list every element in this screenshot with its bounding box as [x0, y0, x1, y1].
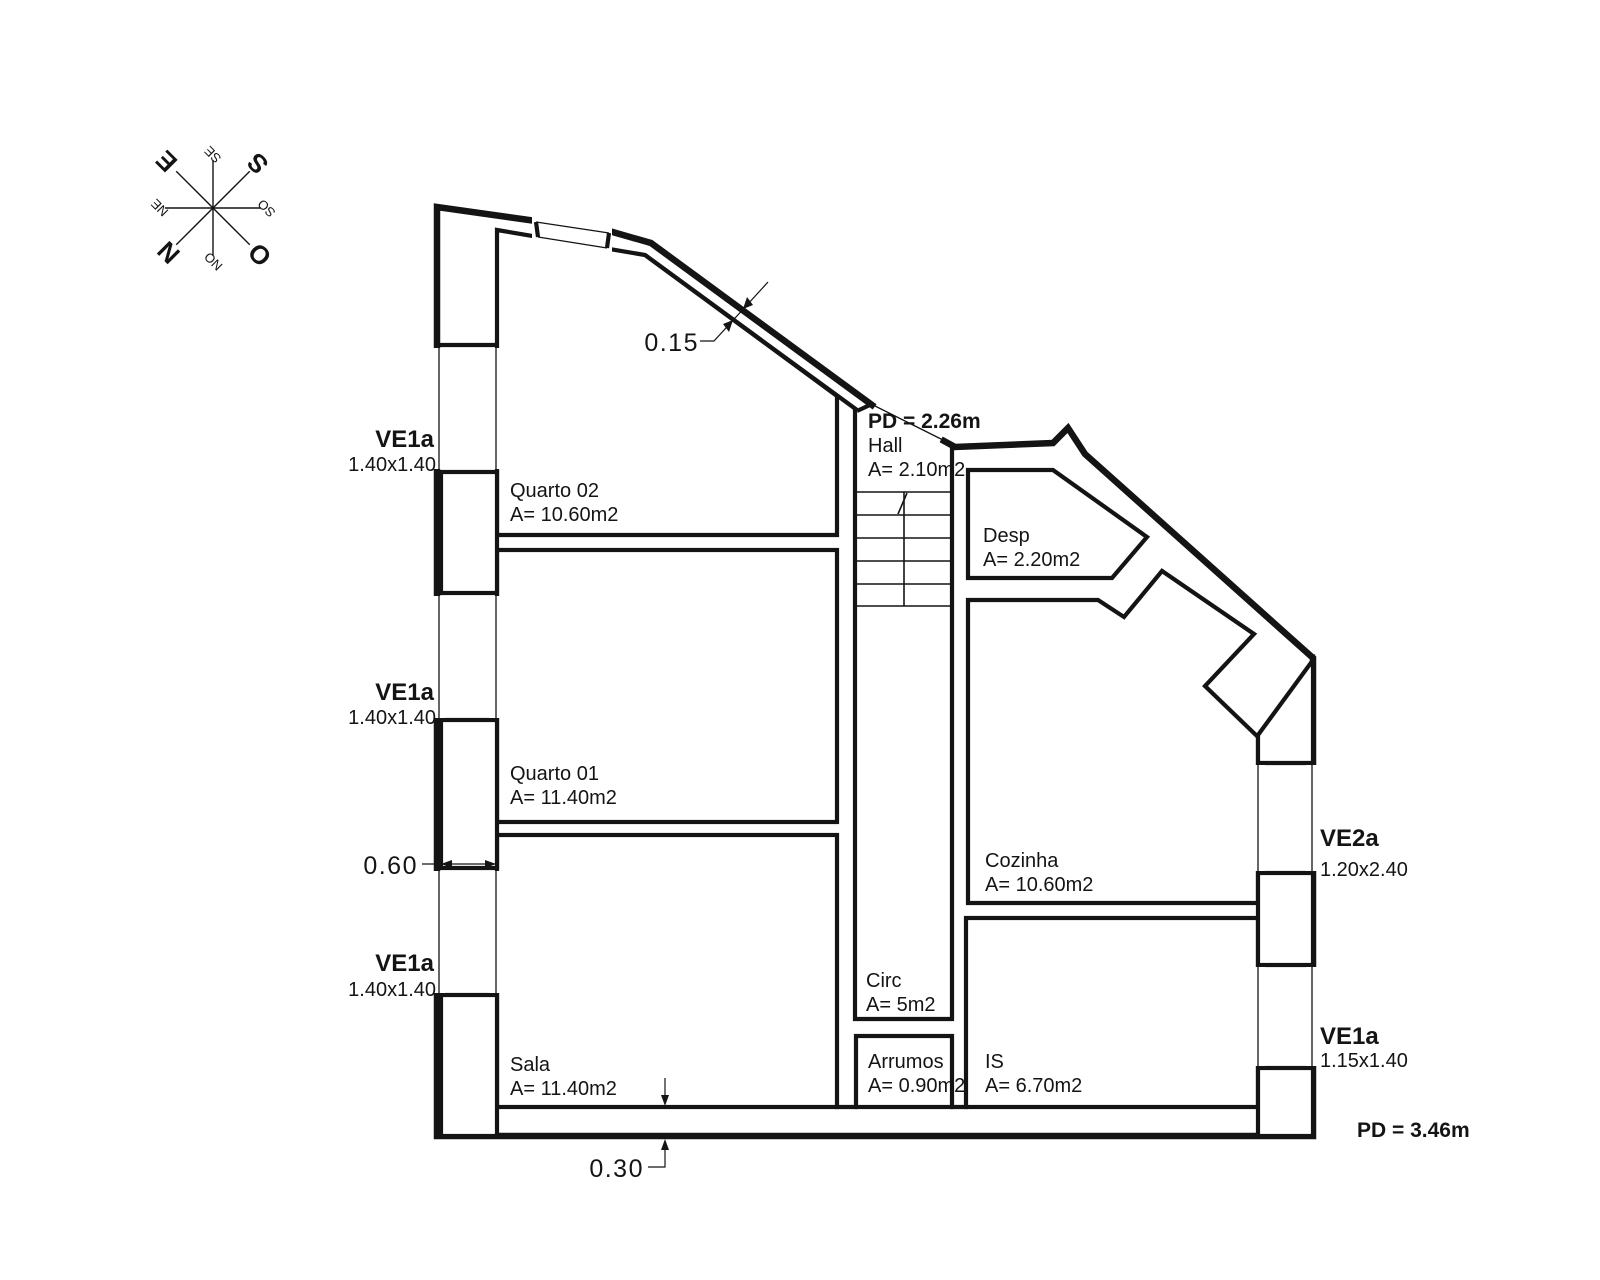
window-ve2a-label: VE2a [1320, 825, 1379, 852]
room-circ-area: A= 5m2 [866, 994, 935, 1016]
room-is-name: IS [985, 1051, 1004, 1073]
room-desp-name: Desp [983, 525, 1030, 547]
room-arrumos-name: Arrumos [868, 1051, 944, 1073]
dim-top-wall-text: 0.15 [644, 329, 699, 357]
window-ve1a-3-size: 1.40x1.40 [348, 979, 436, 1001]
compass-se-label: SE [201, 143, 224, 166]
floor-plan-drawing: N S E O NE SE SO NO [0, 0, 1600, 1280]
window-ve1a-1-size: 1.40x1.40 [348, 454, 436, 476]
compass-no-label: NO [201, 249, 225, 273]
ceiling-height-hall: PD = 2.26m [868, 410, 981, 433]
window-ve1a-4-size: 1.15x1.40 [1320, 1050, 1408, 1072]
staircase [857, 492, 950, 606]
room-quarto01-name: Quarto 01 [510, 763, 599, 785]
room-cozinha-name: Cozinha [985, 850, 1059, 872]
right-wall-pier-1 [1258, 660, 1313, 763]
room-arrumos-area: A= 0.90m2 [868, 1075, 965, 1097]
room-is-area: A= 6.70m2 [985, 1075, 1082, 1097]
room-hall-area: A= 2.10m2 [868, 459, 965, 481]
window-ve2a-size: 1.20x2.40 [1320, 859, 1408, 881]
floor-plan-page: N S E O NE SE SO NO [0, 0, 1600, 1280]
room-sala-name: Sala [510, 1054, 551, 1076]
stair-direction-mark [898, 493, 907, 514]
window-ve1a-4-label: VE1a [1320, 1023, 1379, 1050]
room-desp-area: A= 2.20m2 [983, 549, 1080, 571]
dim-left-wall-text: 0.60 [363, 852, 418, 880]
room-cozinha-area: A= 10.60m2 [985, 874, 1093, 896]
window-ve1a-1-label: VE1a [375, 426, 434, 453]
left-wall-pier-2 [441, 720, 497, 868]
window-ve1a-2-label: VE1a [375, 679, 434, 706]
room-quarto02-area: A= 10.60m2 [510, 504, 618, 526]
window-ve1a-3-label: VE1a [375, 950, 434, 977]
right-wall-pier-2 [1258, 873, 1313, 965]
compass-so-label: SO [254, 196, 278, 220]
room-quarto01-area: A= 11.40m2 [510, 787, 617, 809]
room-hall-name: Hall [868, 435, 902, 457]
room-sala-area: A= 11.40m2 [510, 1078, 617, 1100]
window-ve1a-2-size: 1.40x1.40 [348, 707, 436, 729]
ceiling-height-main: PD = 3.46m [1357, 1119, 1470, 1142]
compass-ne-label: NE [148, 196, 172, 220]
right-wall-pier-3 [1258, 1068, 1313, 1136]
room-quarto02-name: Quarto 02 [510, 480, 599, 502]
left-wall-pier-1 [441, 472, 497, 593]
room-circ-name: Circ [866, 970, 902, 992]
left-wall-pier-3 [441, 995, 497, 1136]
dim-bottom-wall-text: 0.30 [589, 1155, 644, 1183]
compass-rose: N S E O NE SE SO NO [105, 100, 322, 317]
